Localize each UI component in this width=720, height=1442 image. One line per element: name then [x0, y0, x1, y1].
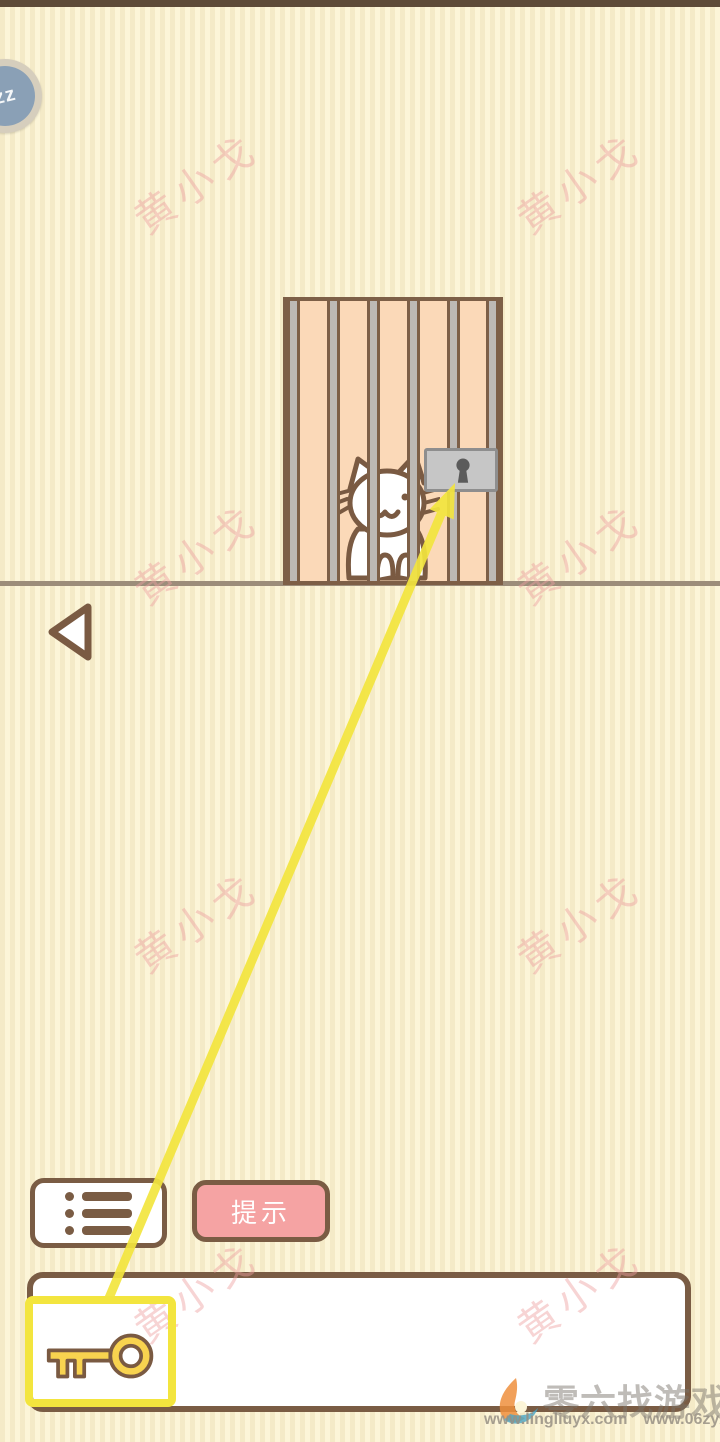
padlock[interactable] [424, 448, 498, 492]
back-triangle-icon [52, 607, 88, 657]
hint-button-label: 提示 [231, 1193, 291, 1230]
keyhole-icon [452, 455, 474, 487]
inventory-slot-key[interactable] [25, 1296, 176, 1407]
cage-bar [486, 301, 499, 581]
site-url-right: www.06zyx.com [643, 1411, 720, 1429]
cage-bar [287, 301, 300, 581]
zz-badge-label: zz [0, 60, 41, 133]
top-strip [0, 0, 720, 7]
site-url-left: www.lingliuyx.com [484, 1411, 627, 1429]
watermark-text: 黄小戈 [121, 488, 270, 616]
site-urls: www.lingliuyx.com www.06zyx.com [484, 1411, 708, 1429]
watermark-text: 黄小戈 [504, 856, 653, 984]
key-icon [45, 1328, 157, 1384]
watermark-text: 黄小戈 [504, 117, 653, 245]
zz-badge[interactable]: zz [0, 59, 42, 133]
cage-bar [407, 301, 420, 581]
back-button[interactable] [44, 602, 94, 662]
cage-bar [367, 301, 380, 581]
hint-button[interactable]: 提示 [192, 1180, 330, 1242]
list-icon [65, 1192, 132, 1235]
watermark-text: 黄小戈 [504, 488, 653, 616]
cage [283, 297, 503, 585]
cage-bar [447, 301, 460, 581]
cage-bar [327, 301, 340, 581]
menu-button[interactable] [30, 1178, 167, 1248]
watermark-text: 黄小戈 [121, 117, 270, 245]
watermark-text: 黄小戈 [121, 856, 270, 984]
